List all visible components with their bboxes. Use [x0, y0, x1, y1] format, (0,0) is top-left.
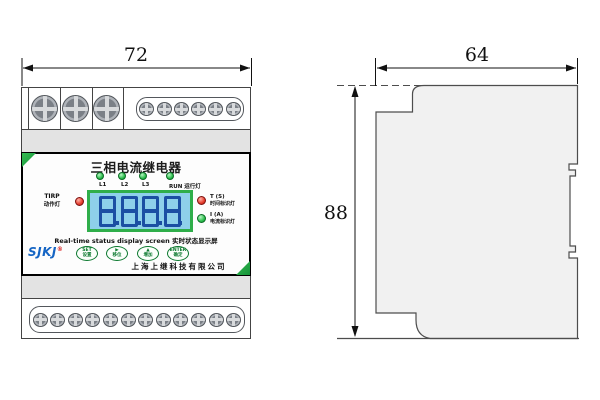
led-l1-label: L1 — [99, 182, 106, 188]
terminal-screw-small — [138, 313, 153, 327]
arrowhead — [240, 65, 250, 72]
top-terminal-block — [21, 87, 251, 130]
bottom-terminal-block — [21, 298, 251, 339]
shift-button-zh: 移位 — [113, 254, 122, 259]
display-digit — [142, 196, 159, 227]
display-digit — [99, 196, 116, 227]
led-current-icon — [197, 214, 206, 223]
enter-button[interactable]: ENTER 确定 — [167, 246, 189, 261]
terminal-divider — [28, 88, 29, 129]
display-digit — [164, 196, 181, 227]
led-time-icon — [197, 196, 206, 205]
terminal-screw-small — [208, 102, 223, 116]
front-view: 三相电流继电器 L1 L2 L3 RUN 运行灯 TIRP 动作灯 — [21, 87, 251, 339]
time-label-zh: 时间标识灯 — [210, 200, 258, 207]
current-led-label: I (A) 电流标识灯 — [210, 212, 258, 225]
terminal-screw-small — [103, 313, 118, 327]
led-trip-icon — [75, 197, 84, 206]
set-button[interactable]: SET 设置 — [76, 246, 98, 261]
brand-logo: SJKJ® — [28, 245, 63, 259]
display-caption: Real-time status display screen 实时状态显示屏 — [23, 235, 249, 245]
dim-side-height-label: 88 — [324, 202, 348, 224]
terminal-strip — [29, 306, 245, 333]
lcd-display — [87, 190, 193, 232]
logo-text: SJKJ — [28, 245, 57, 259]
registered-mark: ® — [57, 246, 64, 253]
led-run-label: RUN 运行灯 — [169, 182, 201, 190]
terminal-screw-small — [50, 313, 65, 327]
display-digit — [121, 196, 138, 227]
terminal-screw-large — [62, 95, 89, 122]
corner-triangle-icon — [236, 261, 250, 275]
terminal-divider — [60, 88, 61, 129]
terminal-screw-small — [85, 313, 100, 327]
side-profile-outline — [376, 86, 578, 339]
front-panel: 三相电流继电器 L1 L2 L3 RUN 运行灯 TIRP 动作灯 — [21, 152, 251, 276]
company-name: 上海上继科技有限公司 — [121, 261, 237, 272]
trip-label-en: TIRP — [33, 193, 71, 200]
led-l2-icon — [118, 172, 126, 180]
arrowhead — [352, 86, 359, 97]
led-l3-label: L3 — [142, 182, 149, 188]
dim-side-width-label: 64 — [465, 44, 489, 66]
terminal-screw-small — [226, 102, 241, 116]
housing-band — [21, 130, 251, 152]
led-run-icon — [166, 172, 174, 180]
trip-label-zh: 动作灯 — [33, 200, 71, 208]
current-label-zh: 电流标识灯 — [210, 218, 258, 225]
terminal-screw-small — [209, 313, 224, 327]
caption-zh: 实时状态显示屏 — [172, 237, 218, 245]
led-l3-icon — [139, 172, 147, 180]
caption-en: Real-time status display screen — [54, 237, 169, 245]
shift-button[interactable]: ▶ 移位 — [106, 246, 128, 261]
arrowhead — [566, 65, 576, 72]
dim-front-width-label: 72 — [124, 44, 148, 66]
set-button-zh: 设置 — [83, 254, 92, 259]
terminal-screw-small — [173, 313, 188, 327]
terminal-strip — [136, 97, 244, 121]
terminal-screw-small — [191, 102, 206, 116]
terminal-screw-small — [33, 313, 48, 327]
terminal-screw-small — [174, 102, 189, 116]
increase-button[interactable]: ▲ 增加 — [137, 246, 159, 261]
terminal-screw-small — [156, 313, 171, 327]
time-led-label: T (S) 时间标识灯 — [210, 194, 258, 207]
terminal-divider — [123, 88, 124, 129]
device-title: 三相电流继电器 — [23, 157, 249, 176]
enter-button-zh: 确定 — [174, 254, 183, 259]
terminal-screw-large — [93, 95, 120, 122]
arrowhead — [23, 65, 33, 72]
increase-button-zh: 增加 — [144, 254, 153, 259]
led-l2-label: L2 — [121, 182, 128, 188]
arrowhead — [352, 326, 359, 337]
terminal-screw-small — [68, 313, 83, 327]
terminal-screw-small — [226, 313, 241, 327]
engineering-drawing: 72 64 88 — [0, 0, 600, 400]
terminal-screw-small — [121, 313, 136, 327]
arrowhead — [377, 65, 387, 72]
led-l1-icon — [96, 172, 104, 180]
terminal-screw-small — [139, 102, 154, 116]
terminal-screw-large — [31, 95, 58, 122]
housing-band — [21, 276, 251, 298]
trip-led-label: TIRP 动作灯 — [33, 193, 71, 208]
terminal-screw-small — [157, 102, 172, 116]
terminal-screw-small — [191, 313, 206, 327]
